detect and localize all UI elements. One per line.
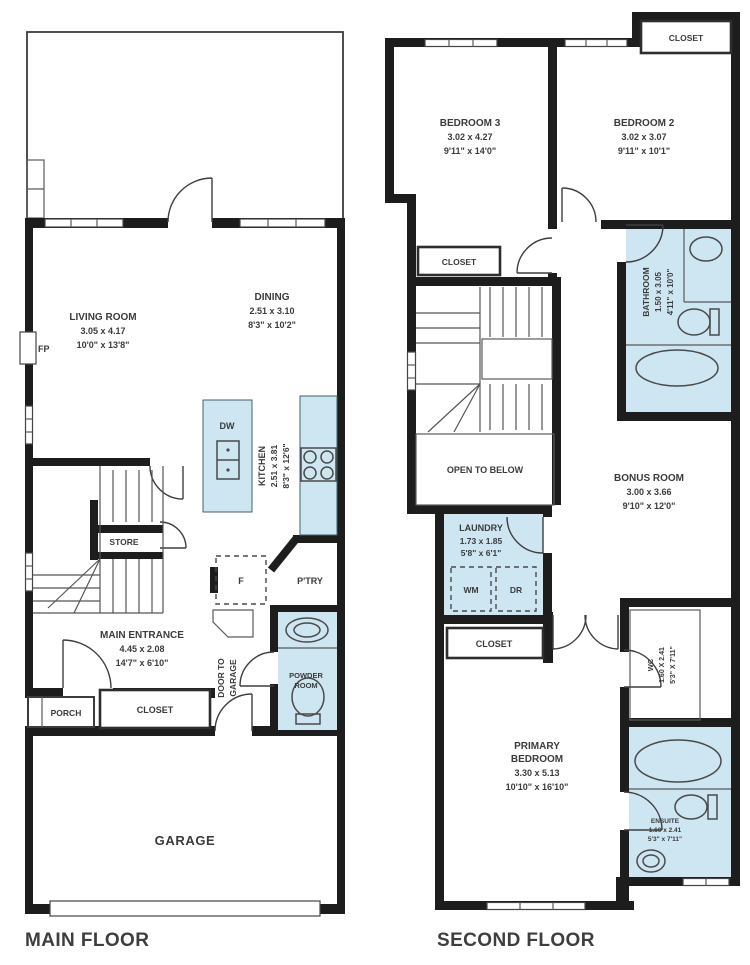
pantry-angled-wall: [271, 539, 296, 570]
kitchen-counter: [300, 396, 337, 535]
dishwasher-label: DW: [220, 421, 235, 431]
floor-plan-page: LIVING ROOM 3.05 x 4.17 10'0" x 13'8" FP…: [0, 0, 750, 960]
bonus-room-metric: 3.00 x 3.66: [626, 487, 671, 497]
primary-bedroom-metric: 3.30 x 5.13: [514, 768, 559, 778]
bonus-room-label: BONUS ROOM: [614, 473, 684, 484]
dryer-label: DR: [510, 585, 522, 595]
living-room-imperial: 10'0" x 13'8": [77, 340, 130, 350]
kitchen-fixtures: [203, 396, 337, 637]
dining-label: DINING: [255, 292, 290, 303]
primary-bedroom-label-2: BEDROOM: [511, 754, 563, 765]
bedroom3-imperial: 9'11" x 14'0": [444, 146, 496, 156]
fridge-label: F: [238, 576, 244, 586]
dining-metric: 2.51 x 3.10: [249, 306, 294, 316]
window: [425, 40, 497, 47]
entry-bench: [213, 610, 253, 637]
dining-imperial: 8'3" x 10'2": [248, 320, 296, 330]
open-to-below-label: OPEN TO BELOW: [447, 465, 524, 475]
garage-door: [50, 901, 320, 916]
living-room-label: LIVING ROOM: [69, 312, 136, 323]
fireplace-label: FP: [38, 344, 50, 354]
ensuite-label: ENSUITE: [651, 818, 680, 825]
ensuite-imperial: 5'3" x 7'11": [648, 836, 682, 843]
bedroom3-label: BEDROOM 3: [440, 118, 501, 129]
door-to-garage-label-2: GARAGE: [228, 659, 238, 697]
ensuite-metric: 1.60 x 2.41: [649, 827, 682, 834]
living-room-metric: 3.05 x 4.17: [80, 326, 125, 336]
laundry-label: LAUNDRY: [459, 523, 503, 533]
bedroom2-metric: 3.02 x 3.07: [621, 132, 666, 142]
window: [487, 903, 585, 910]
wc-imperial: 5'3" X 7'11": [670, 646, 677, 684]
kitchen-metric: 2.51 x 3.81: [269, 444, 279, 487]
window: [45, 219, 123, 227]
second-floor-plan: CLOSET BEDROOM 3 3.02 x 4.27 9'11" x 14'…: [385, 12, 740, 951]
pantry-label: P'TRY: [297, 576, 323, 586]
bedroom2-label: BEDROOM 2: [614, 118, 675, 129]
washer-label: WM: [463, 585, 478, 595]
porch-label: PORCH: [51, 708, 82, 718]
wc-label: WC: [646, 658, 655, 671]
primary-closet-label: CLOSET: [476, 639, 513, 649]
entry-closet-label: CLOSET: [137, 705, 174, 715]
bedroom3-metric: 3.02 x 4.27: [447, 132, 492, 142]
kitchen-label: KITCHEN: [257, 446, 267, 486]
main-floor-title: MAIN FLOOR: [25, 930, 149, 951]
bedroom2-closet-label: CLOSET: [669, 33, 704, 43]
fireplace-box: [20, 332, 36, 364]
bathroom-metric: 1.50 x 3.05: [654, 271, 663, 312]
laundry-metric: 1.73 x 1.85: [460, 536, 503, 546]
window: [565, 40, 627, 47]
bonus-room-imperial: 9'10" x 12'0": [623, 501, 676, 511]
window: [26, 406, 33, 444]
store-label: STORE: [109, 537, 138, 547]
main-floor-plan: LIVING ROOM 3.05 x 4.17 10'0" x 13'8" FP…: [20, 32, 345, 951]
bathroom-imperial: 4'11" x 10'0": [666, 269, 675, 316]
main-entrance-label: MAIN ENTRANCE: [100, 630, 184, 641]
floor-plan-svg: LIVING ROOM 3.05 x 4.17 10'0" x 13'8" FP…: [0, 0, 750, 960]
powder-room-label-1: POWDER: [289, 671, 323, 680]
kitchen-island: [203, 400, 252, 512]
main-entrance-metric: 4.45 x 2.08: [119, 644, 164, 654]
primary-bedroom-imperial: 10'10" x 16'10": [506, 782, 569, 792]
door-to-garage-label-1: DOOR TO: [216, 658, 226, 698]
powder-room-label-2: ROOM: [294, 681, 317, 690]
laundry-imperial: 5'8" x 6'1": [461, 548, 501, 558]
second-floor-title: SECOND FLOOR: [437, 930, 595, 951]
garage-label: GARAGE: [155, 833, 216, 848]
primary-bedroom-label-1: PRIMARY: [514, 741, 560, 752]
kitchen-imperial: 8'3" x 12'6": [281, 443, 291, 488]
window: [408, 352, 416, 390]
ensuite-area: [629, 727, 731, 877]
bedroom2-imperial: 9'11" x 10'1": [618, 146, 670, 156]
hall-closet-label: CLOSET: [442, 257, 477, 267]
main-entrance-imperial: 14'7" x 6'10": [116, 658, 169, 668]
window: [240, 219, 325, 227]
window: [26, 553, 33, 591]
wc-metric: 1.60 X 2.41: [659, 647, 666, 683]
bathroom-label: BATHROOM: [641, 267, 651, 316]
deck-outline: [27, 32, 343, 222]
